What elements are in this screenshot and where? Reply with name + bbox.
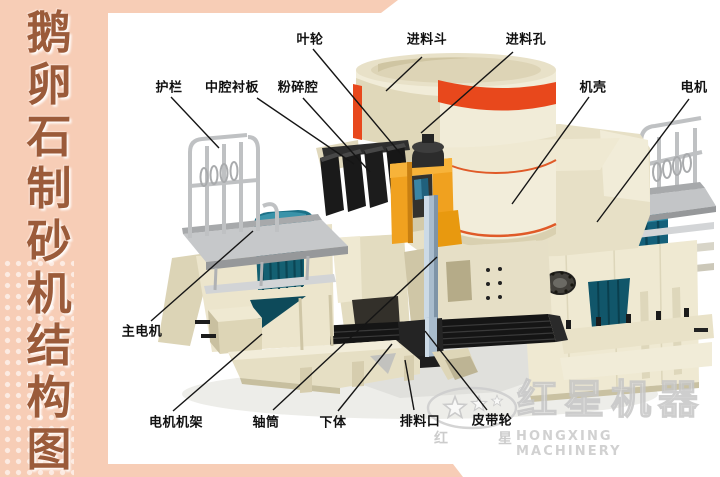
label-discharge-port: 排料口	[400, 411, 441, 430]
label-guardrail: 护栏	[155, 77, 182, 96]
label-casing: 机壳	[579, 77, 606, 96]
label-feed-hopper: 进料斗	[407, 29, 448, 48]
label-belt-pulley: 皮带轮	[472, 410, 513, 429]
label-lower-body: 下体	[319, 412, 346, 431]
label-shaft-tube: 轴筒	[252, 412, 279, 431]
label-impeller: 叶轮	[296, 29, 323, 48]
label-crushing-chamber: 粉碎腔	[278, 77, 319, 96]
label-motor: 电机	[680, 77, 707, 96]
label-main-motor: 主电机	[122, 321, 163, 340]
leader-lines	[0, 0, 720, 477]
label-motor-frame: 电机机架	[149, 412, 203, 431]
page: 鹅 卵 石 制 砂 机 结 构 图	[0, 0, 720, 477]
label-cavity-liner: 中腔衬板	[205, 77, 259, 96]
label-feed-hole: 进料孔	[506, 29, 547, 48]
